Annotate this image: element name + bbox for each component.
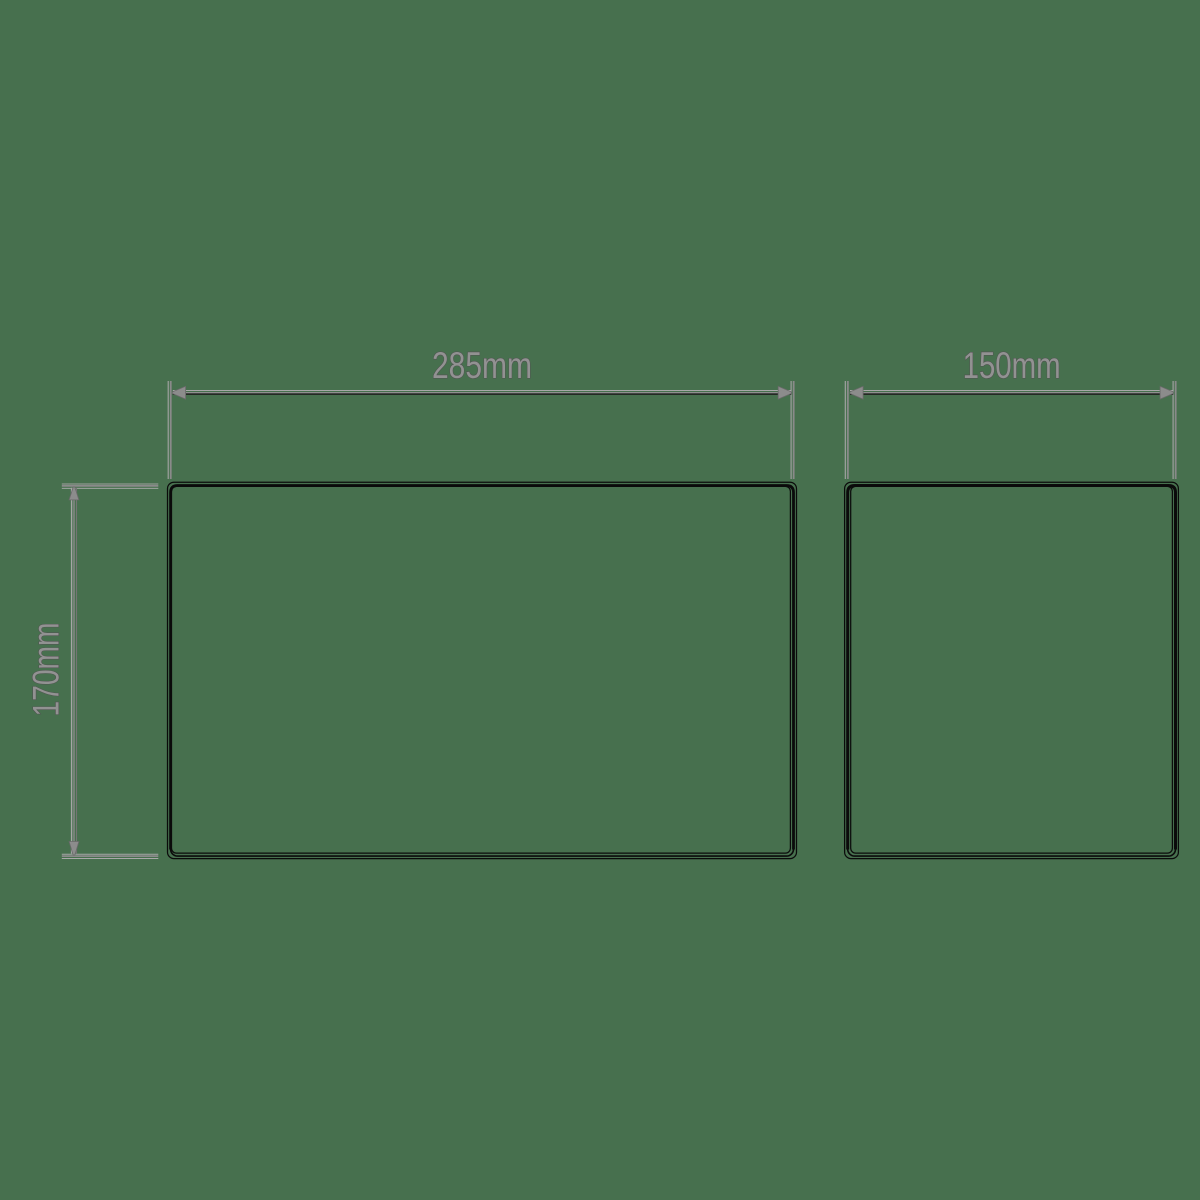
svg-text:170mm: 170mm xyxy=(26,623,67,717)
svg-text:150mm: 150mm xyxy=(963,345,1061,386)
svg-text:285mm: 285mm xyxy=(432,345,532,386)
